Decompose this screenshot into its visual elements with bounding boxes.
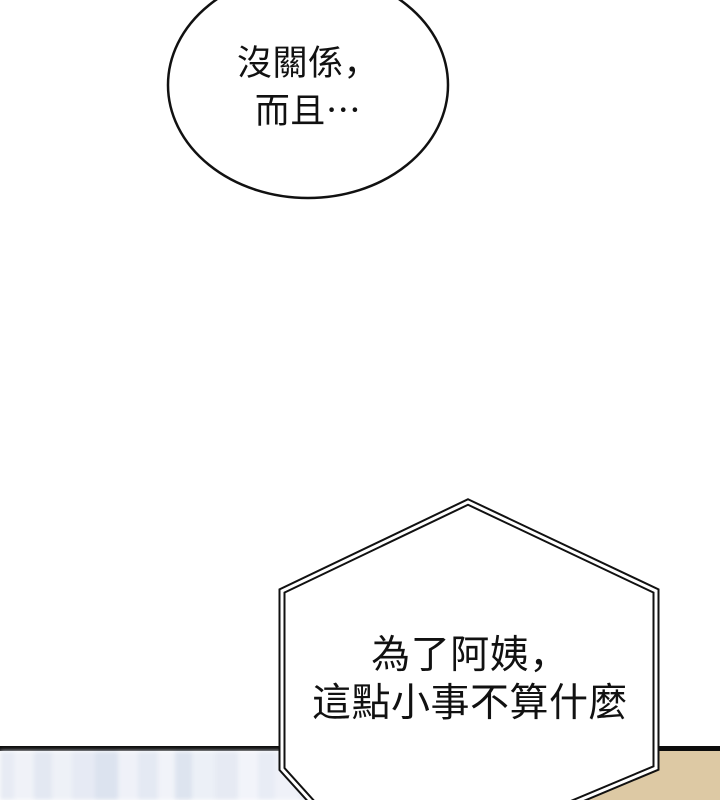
dialogue-line: 為了阿姨， <box>312 632 628 680</box>
bottom-bubble-dialogue: 為了阿姨， 這點小事不算什麼 <box>312 632 628 728</box>
comic-panel: 沒關係， 而且⋯ 為了阿姨， 這點小事不算什麼 <box>0 0 720 800</box>
dialogue-line: 而且⋯ <box>237 88 379 136</box>
dialogue-line: 沒關係， <box>237 40 379 88</box>
dialogue-line: 這點小事不算什麼 <box>312 680 628 728</box>
top-bubble-dialogue: 沒關係， 而且⋯ <box>237 40 379 136</box>
